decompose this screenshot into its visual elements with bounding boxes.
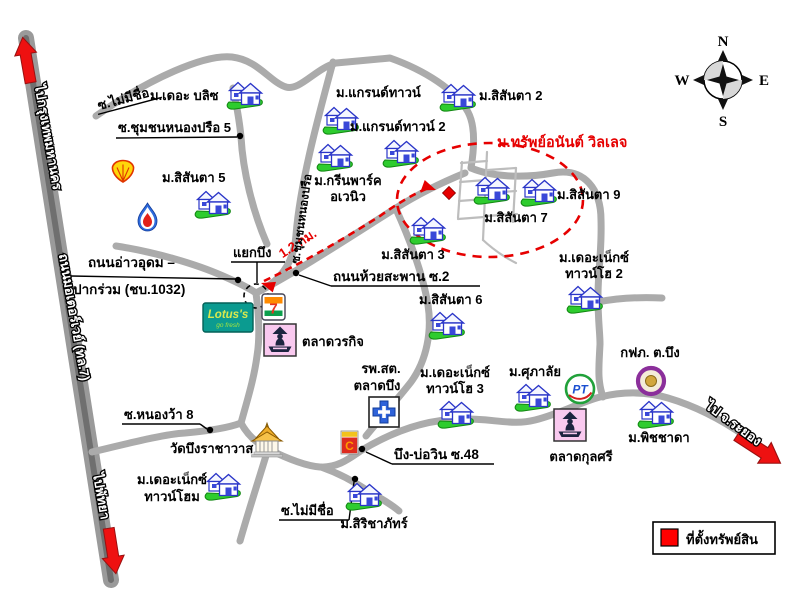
map-canvas: PT Lotus's go fresh 7 C xyxy=(0,0,785,600)
village-label-sisanta-6: ม.สิสันตา 6 xyxy=(419,292,483,307)
village-label-next-town-2-2: ทาวน์โฮ 2 xyxy=(565,265,623,281)
hospital-label-line2: ตลาดบึง xyxy=(354,378,401,393)
village-label-next-town-2-1: ม.เดอะเน็กซ์ xyxy=(559,248,629,265)
hospital-label-line1: รพ.สต. xyxy=(361,361,400,376)
village-label-sisanta-2: ม.สิสันตา 2 xyxy=(479,88,543,103)
market-worakit-label: ตลาดวรกิจ xyxy=(302,334,364,349)
pea-office-icon xyxy=(638,368,664,394)
temple-label: วัดบึงราชาวาส xyxy=(170,441,253,456)
village-label-supalai: ม.ศุภาลัย xyxy=(509,364,561,380)
village-label-grand-town: ม.แกรนด์ทาวน์ xyxy=(336,85,421,100)
map-page: PT Lotus's go fresh 7 C xyxy=(0,0,785,600)
seven-eleven-icon xyxy=(262,294,285,320)
market-kulsri-icon xyxy=(554,409,586,441)
compass-label-e: E xyxy=(759,73,769,89)
pt-station-icon xyxy=(566,375,594,403)
highlight-village-label: ม.ทรัพย์อนันต์ วิลเลจ xyxy=(497,133,627,151)
market-kulsri-label: ตลาดกุลศรี xyxy=(549,449,612,465)
huai-saphan-text: ถนนห้วยสะพาน ซ.2 xyxy=(333,269,449,284)
road-dot xyxy=(352,476,358,482)
village-label-next-townhome-2: ทาวน์โฮม xyxy=(144,488,200,504)
village-label-green-park-2: อเวนิว xyxy=(330,189,366,204)
legend: ที่ตั้งทรัพย์สิน xyxy=(653,522,775,554)
road-dot xyxy=(359,446,365,452)
market-worakit-icon xyxy=(264,324,296,356)
lotus-store-icon xyxy=(203,303,253,332)
village-label-sisanta-3: ม.สิสันตา 3 xyxy=(381,247,445,262)
village-label-grand-town-2: ม.แกรนด์ทาวน์ 2 xyxy=(350,119,446,134)
hospital-icon xyxy=(369,397,399,427)
legend-property-swatch xyxy=(661,529,678,546)
road-dot xyxy=(293,270,299,276)
minimart-icon xyxy=(341,431,358,454)
compass-label-w: W xyxy=(675,73,690,89)
nongwa-8-text: ซ.หนองว้า 8 xyxy=(124,407,194,422)
ao-udom-line1: ถนนอ่าวอุดม – xyxy=(88,255,175,271)
road-dot xyxy=(207,427,213,433)
village-label-sisanta-5: ม.สิสันตา 5 xyxy=(162,170,226,185)
village-label-next-town-3-2: ทาวน์โฮ 3 xyxy=(426,380,484,396)
village-label-next-townhome-1: ม.เดอะเน็กซ์ xyxy=(137,470,207,487)
legend-label: ที่ตั้งทรัพย์สิน xyxy=(686,529,758,547)
village-label-pitchada: ม.พิชชาดา xyxy=(628,430,689,445)
road-dot xyxy=(235,277,241,283)
compass-label-n: N xyxy=(718,34,729,50)
yaek-bueng-text: แยกบึง xyxy=(233,245,271,260)
village-label-sisanta-7: ม.สิสันตา 7 xyxy=(484,210,548,225)
compass-label-s: S xyxy=(719,114,727,130)
ao-udom-line2: ปากร่วม (ชบ.1032) xyxy=(73,282,185,297)
soi-no-name-bottom-text: ซ.ไม่มีชื่อ xyxy=(281,501,334,518)
village-label-green-park-1: ม.กรีนพาร์ค xyxy=(314,173,381,188)
soi-chumchon-5-text: ซ.ชุมชนหนองปรือ 5 xyxy=(118,120,231,136)
bueng-bowin-text: บึง-บ่อวิน ซ.48 xyxy=(394,447,479,462)
village-label-the-blitz: ม.เดอะ บลิซ xyxy=(150,88,219,103)
village-label-sisanta-9: ม.สิสันตา 9 xyxy=(557,187,621,202)
pea-office-label: กฟภ. ต.บึง xyxy=(620,345,680,360)
village-label-sirichapat: ม.สิริชาภัทร์ xyxy=(340,516,407,531)
village-label-next-town-3-1: ม.เดอะเน็กซ์ xyxy=(420,363,490,380)
road-dot xyxy=(237,133,243,139)
